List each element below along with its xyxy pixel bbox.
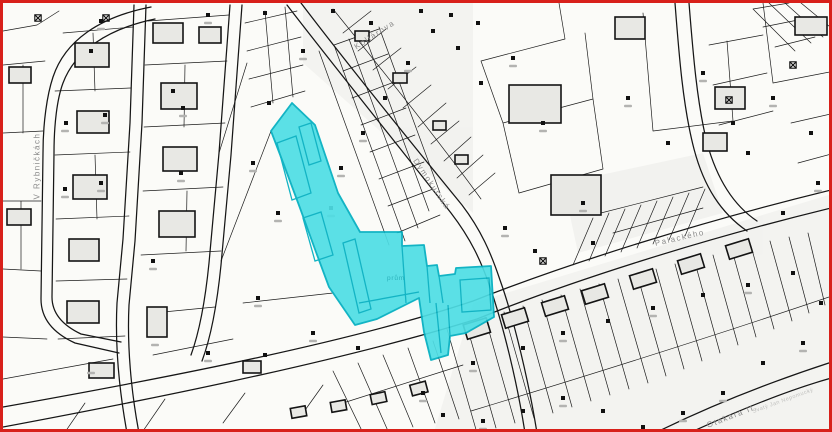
cadastral-map [3, 3, 832, 432]
cadastral-map-viewport: V Rybničkách Kollárova Dymokurská Palack… [0, 0, 832, 432]
selection-area-label: prům [387, 275, 405, 282]
street-label-v-rybnickach: V Rybničkách [33, 133, 42, 200]
